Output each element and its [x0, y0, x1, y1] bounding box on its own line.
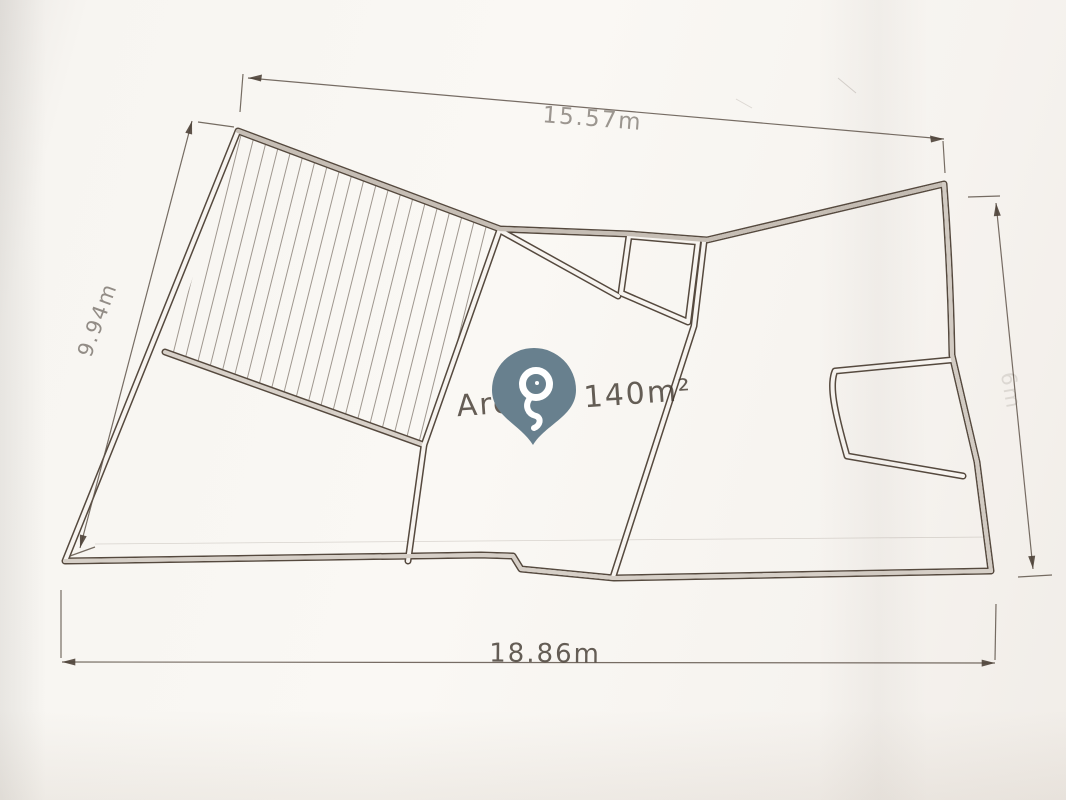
location-pin-icon — [492, 348, 576, 445]
left-dimension-label: 9.94m — [73, 279, 122, 360]
bottom-dimension-label: 18.86m — [489, 639, 601, 670]
scanned-paper-background: 15.57m 9.94m 18.86m 6m Area = 140m² — [0, 0, 1066, 800]
pin-glyph-dot — [535, 381, 539, 385]
right-dimension-label: 6m — [996, 370, 1026, 411]
construction-line — [95, 537, 990, 544]
floor-plan-sketch: 15.57m 9.94m 18.86m 6m Area = 140m² — [0, 0, 1066, 800]
top-dimension-label: 15.57m — [542, 102, 644, 136]
stray-pencil-marks — [736, 78, 856, 108]
